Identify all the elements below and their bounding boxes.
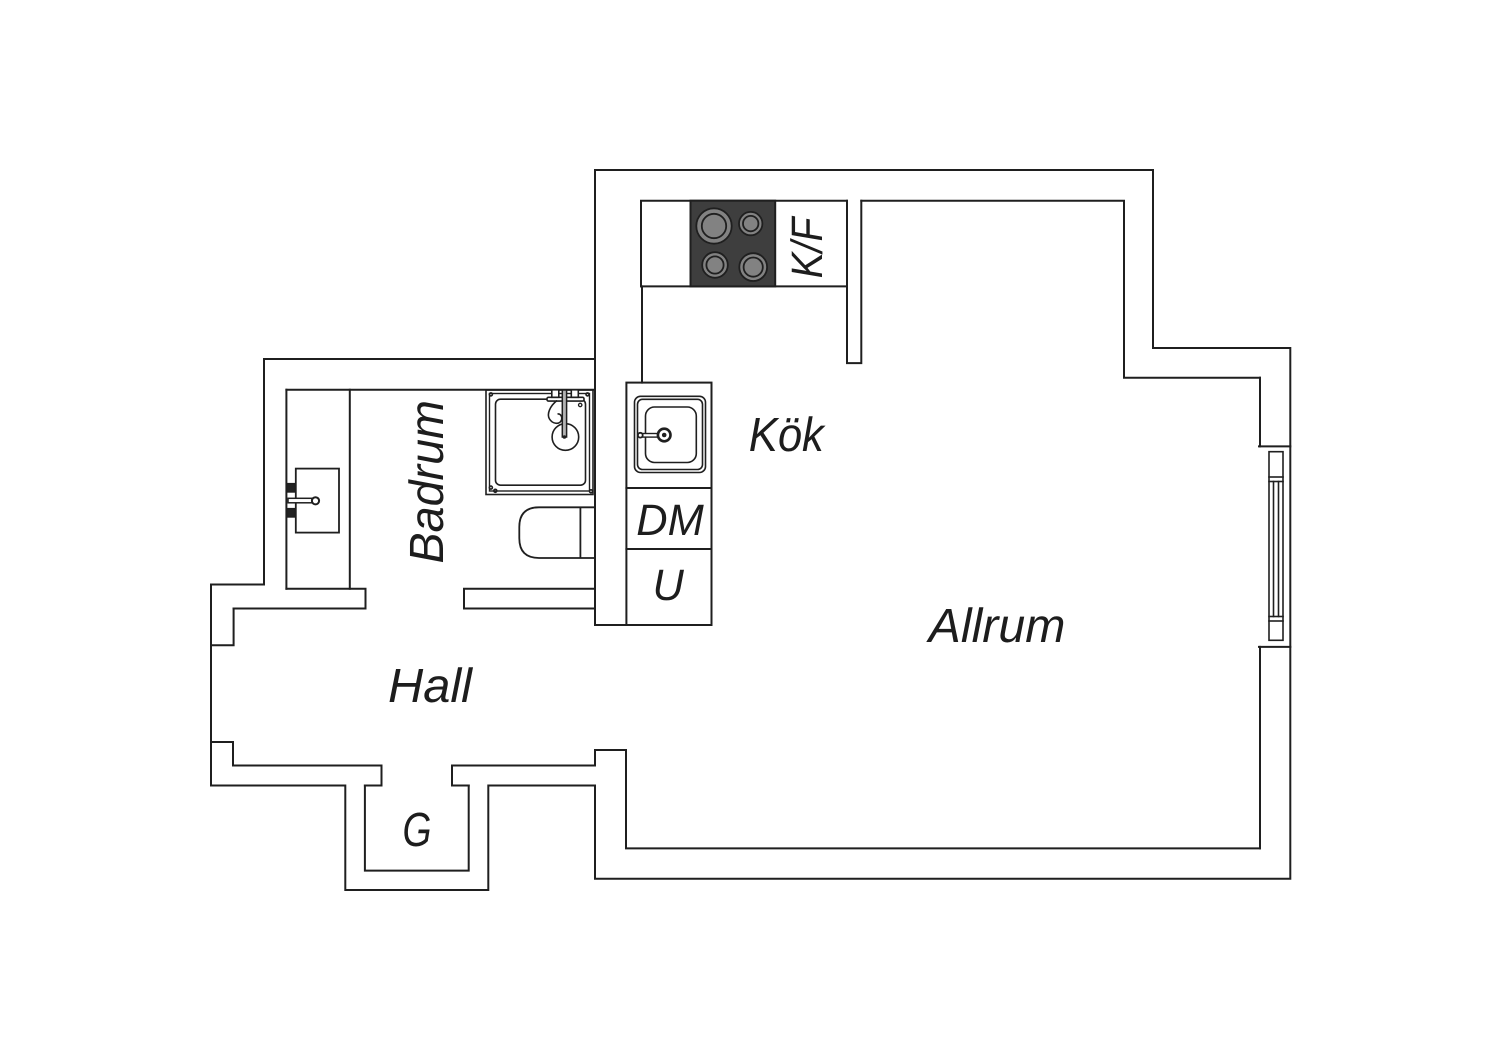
svg-text:Badrum: Badrum xyxy=(401,400,454,563)
svg-text:K/F: K/F xyxy=(783,216,832,279)
svg-text:Hall: Hall xyxy=(388,660,473,713)
svg-text:Allrum: Allrum xyxy=(926,600,1066,653)
svg-text:Kök: Kök xyxy=(749,409,827,462)
svg-text:U: U xyxy=(653,561,685,610)
svg-text:G: G xyxy=(403,804,432,857)
svg-text:DM: DM xyxy=(636,496,704,545)
